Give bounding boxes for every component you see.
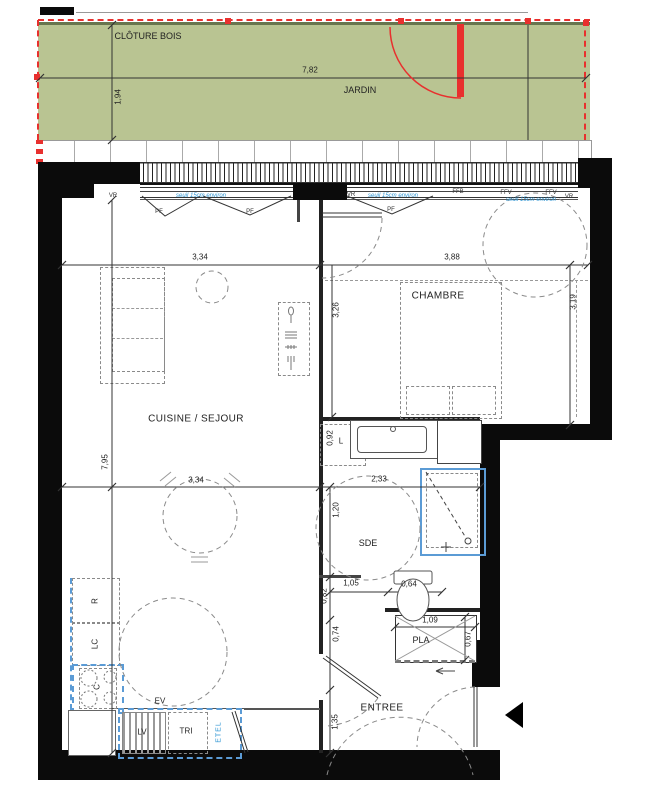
sill-note: seuil 15cm environ: [368, 193, 418, 199]
opening-label-ffv: FFV: [545, 190, 556, 196]
sill-note: seuil 15cm environ: [506, 197, 556, 203]
fixture-label-electrical: ETEL: [216, 721, 223, 743]
sill-note: seuil 15cm environ: [176, 193, 226, 199]
fixture-label-dishwasher: LV: [137, 728, 146, 737]
fixture-label-laundry: LC: [91, 639, 100, 649]
room-label-sde: SDE: [359, 538, 378, 548]
plan-linework: [0, 0, 646, 800]
dim-garden-width: 7,82: [302, 66, 318, 75]
room-label-closet: PLA: [412, 635, 429, 645]
dim-hall-depth: 0,74: [332, 626, 341, 642]
opening-label-vr: VR: [565, 194, 573, 200]
dim-wc-depth: 0,82: [320, 588, 329, 604]
floor-plan: CLÔTURE BOIS 7,82 JARDIN 1,94 3,34 3,88 …: [0, 0, 646, 800]
dim-living-depth: 7,95: [101, 454, 110, 470]
opening-label-pf: PF: [155, 209, 163, 215]
dim-wc-width: 1,05: [343, 579, 359, 588]
fixture-label-cooktop: C: [93, 684, 102, 690]
fence-label: CLÔTURE BOIS: [114, 31, 181, 41]
opening-label-ffv: FFV: [500, 190, 511, 196]
dim-wc-nook: 0,64: [401, 580, 417, 589]
chair-marks: [160, 472, 240, 562]
dim-closet-width: 1,09: [422, 616, 438, 625]
dim-living-width: 3,34: [192, 253, 208, 262]
opening-label-pf: PF: [387, 207, 395, 213]
toilet: [394, 571, 432, 621]
dim-closet-depth: 0,67: [464, 631, 473, 647]
dim-entry-depth: 1,35: [331, 714, 340, 730]
opening-label-ffb: FFB: [452, 189, 463, 195]
dim-sde-width: 2,33: [371, 475, 387, 484]
dim-sde-depth: 1,20: [332, 502, 341, 518]
dim-washer-width: 0,92: [326, 430, 335, 446]
dim-bedroom-width: 3,88: [444, 253, 460, 262]
opening-label-vr: VR: [109, 193, 117, 199]
room-label-bedroom: CHAMBRE: [412, 291, 465, 302]
dim-living-inner: 3,26: [332, 302, 341, 318]
opening-label-vr: VR: [347, 192, 355, 198]
dimension-lines: [40, 25, 588, 753]
dim-garden-depth: 1,94: [114, 89, 123, 105]
fixture-label-washer: L: [339, 437, 343, 446]
fixture-label-fridge: R: [91, 598, 100, 604]
garden-label: JARDIN: [344, 85, 377, 95]
room-label-living: CUISINE / SEJOUR: [148, 414, 244, 425]
room-label-entry: ENTREE: [361, 703, 404, 714]
casement-lines: [142, 196, 477, 753]
opening-label-pf: PF: [246, 209, 254, 215]
gate-swing-arc: [390, 27, 461, 98]
fixture-label-sink: EV: [155, 697, 166, 706]
utensil-icons: [285, 307, 297, 370]
fixture-label-waste: TRI: [180, 727, 193, 736]
dim-living-width2: 3,34: [188, 476, 204, 485]
dim-bedroom-depth: 3,19: [569, 294, 578, 310]
